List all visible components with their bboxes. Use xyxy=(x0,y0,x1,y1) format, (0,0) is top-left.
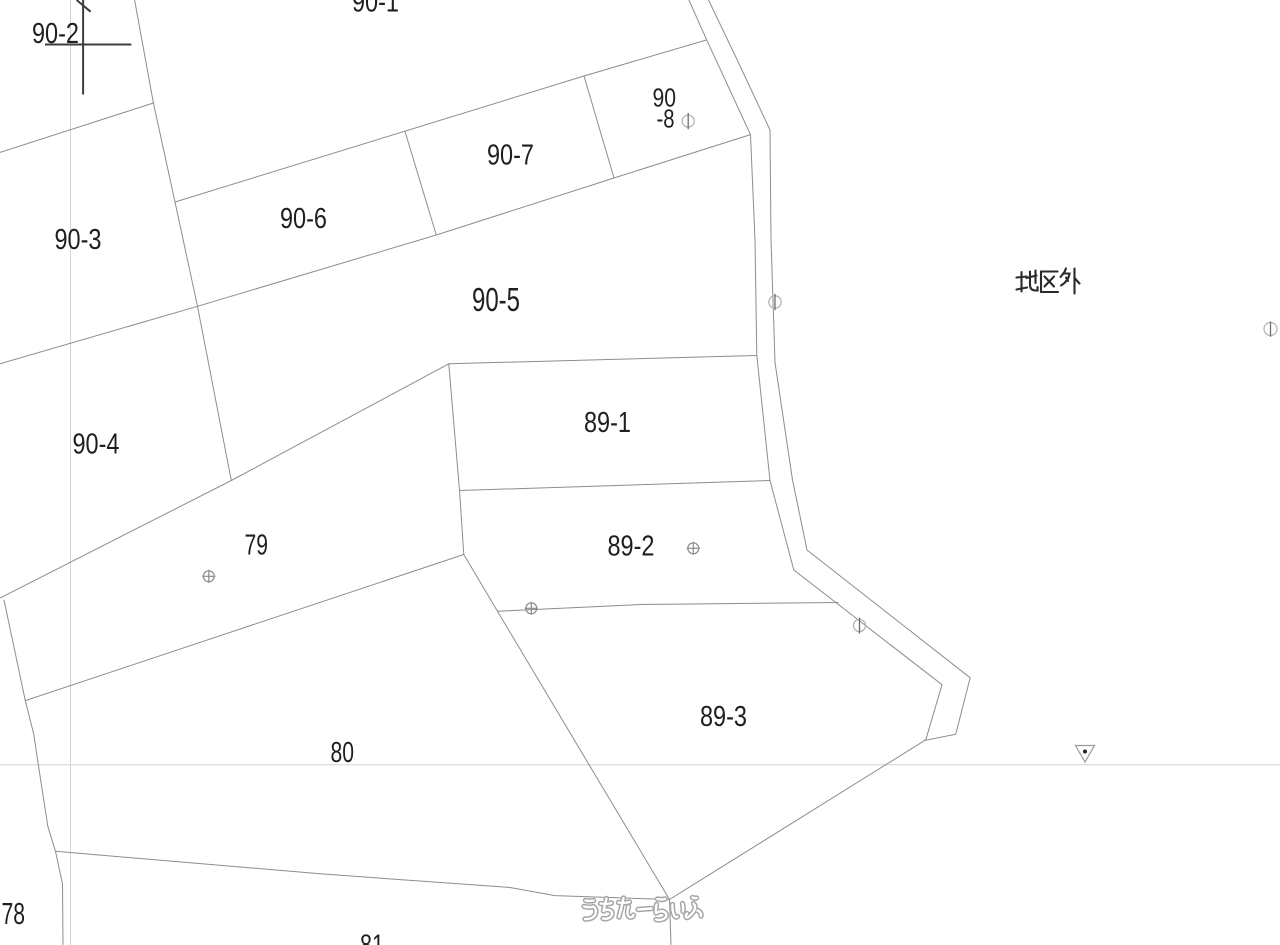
svg-text:80: 80 xyxy=(331,737,355,769)
svg-text:90-6: 90-6 xyxy=(280,203,327,235)
svg-text:81: 81 xyxy=(360,930,384,945)
svg-text:89-2: 89-2 xyxy=(608,531,655,563)
svg-text:89-1: 89-1 xyxy=(584,407,631,439)
svg-text:90-1: 90-1 xyxy=(352,0,399,19)
svg-text:-8: -8 xyxy=(657,104,675,134)
svg-text:79: 79 xyxy=(245,530,269,562)
svg-text:90-7: 90-7 xyxy=(487,140,534,172)
svg-text:90-3: 90-3 xyxy=(55,224,102,256)
svg-text:90-4: 90-4 xyxy=(73,429,120,461)
svg-text:90-5: 90-5 xyxy=(472,281,520,318)
svg-text:89-3: 89-3 xyxy=(700,701,747,733)
svg-text:78: 78 xyxy=(2,896,26,931)
svg-text:90-2: 90-2 xyxy=(32,18,79,50)
